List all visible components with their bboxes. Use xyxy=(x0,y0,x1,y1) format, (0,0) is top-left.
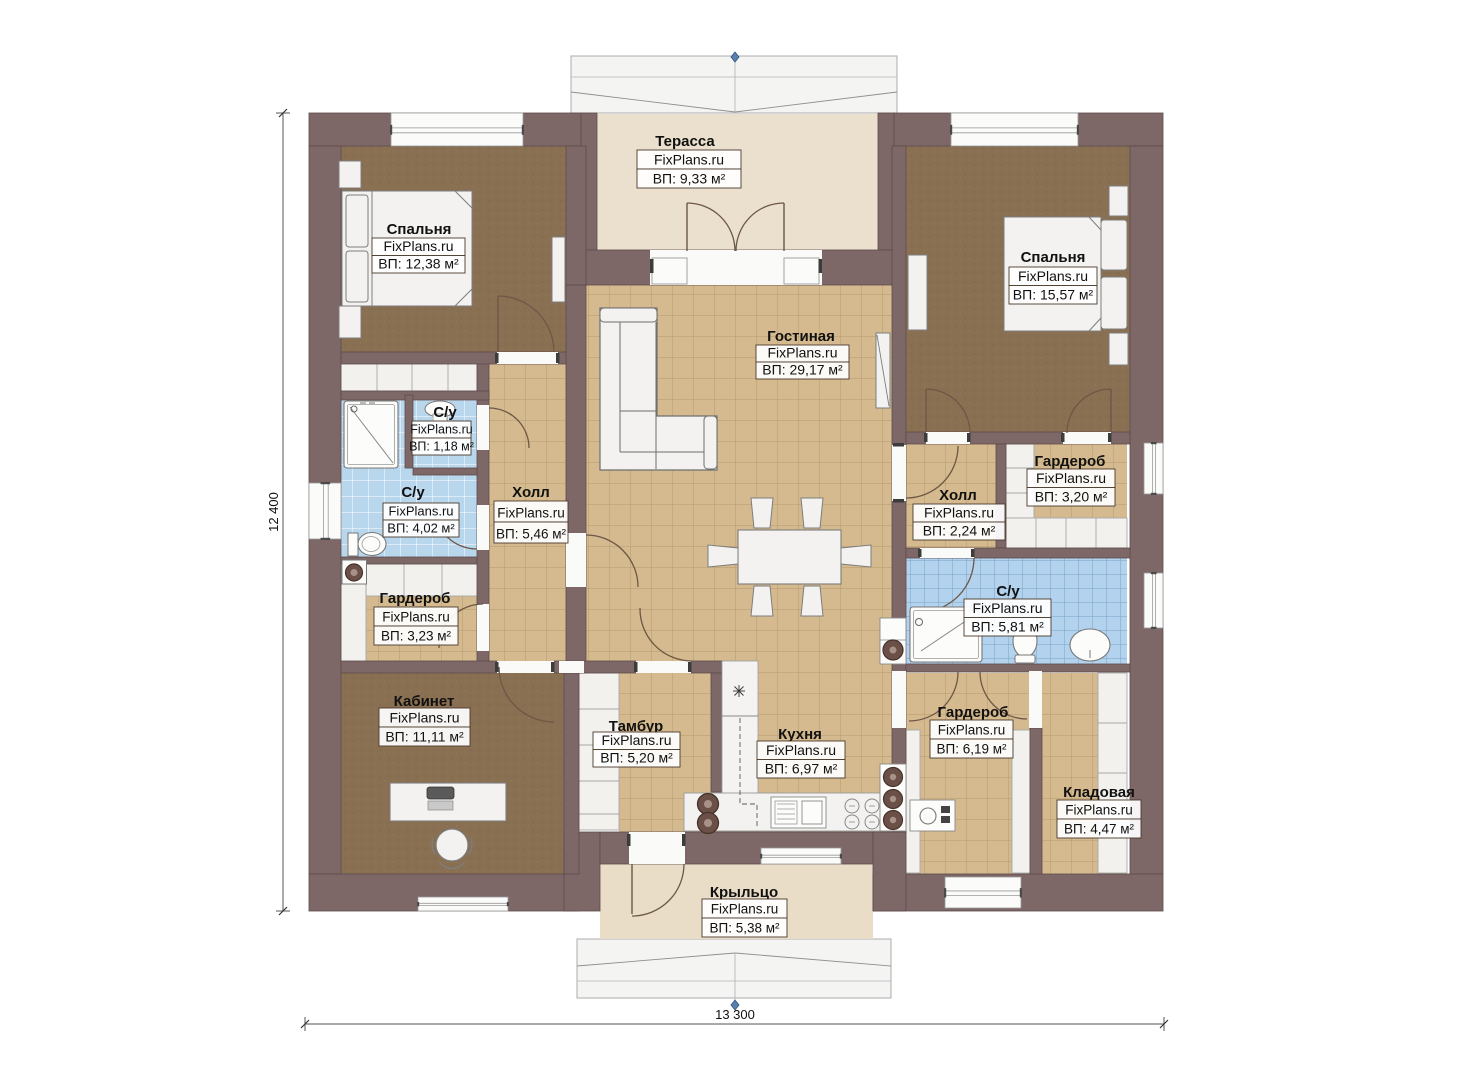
svg-text:ВП: 6,97 м²: ВП: 6,97 м² xyxy=(765,761,838,777)
svg-text:ВП: 4,02 м²: ВП: 4,02 м² xyxy=(387,521,455,536)
svg-text:12 400: 12 400 xyxy=(266,492,281,532)
svg-text:Кухня: Кухня xyxy=(778,726,822,743)
svg-text:Кладовая: Кладовая xyxy=(1063,784,1135,801)
svg-text:ВП: 9,33 м²: ВП: 9,33 м² xyxy=(653,171,726,187)
svg-text:Терасса: Терасса xyxy=(655,133,715,150)
svg-text:ВП: 15,57 м²: ВП: 15,57 м² xyxy=(1013,287,1094,303)
svg-text:ВП: 3,23 м²: ВП: 3,23 м² xyxy=(381,629,452,644)
svg-text:ВП: 5,20 м²: ВП: 5,20 м² xyxy=(600,750,673,766)
svg-text:Гостиная: Гостиная xyxy=(767,328,835,345)
svg-text:ВП: 11,11 м²: ВП: 11,11 м² xyxy=(385,729,464,745)
svg-text:FixPlans.ru: FixPlans.ru xyxy=(601,732,671,748)
svg-text:FixPlans.ru: FixPlans.ru xyxy=(924,505,994,521)
svg-text:Спальня: Спальня xyxy=(1021,249,1086,266)
svg-text:ВП: 5,46 м²: ВП: 5,46 м² xyxy=(496,527,567,542)
svg-text:Холл: Холл xyxy=(512,484,550,501)
svg-text:ВП: 5,81 м²: ВП: 5,81 м² xyxy=(971,619,1044,635)
svg-text:ВП: 6,19 м²: ВП: 6,19 м² xyxy=(936,742,1007,757)
svg-text:FixPlans.ru: FixPlans.ru xyxy=(767,345,837,361)
svg-text:Холл: Холл xyxy=(939,487,977,504)
svg-text:FixPlans.ru: FixPlans.ru xyxy=(972,600,1042,616)
svg-text:ВП: 4,47 м²: ВП: 4,47 м² xyxy=(1064,822,1135,837)
svg-text:FixPlans.ru: FixPlans.ru xyxy=(938,723,1006,738)
svg-text:FixPlans.ru: FixPlans.ru xyxy=(711,902,779,917)
svg-text:FixPlans.ru: FixPlans.ru xyxy=(497,506,565,521)
svg-text:FixPlans.ru: FixPlans.ru xyxy=(766,742,836,758)
svg-text:ВП: 1,18 м²: ВП: 1,18 м² xyxy=(409,440,474,454)
svg-text:FixPlans.ru: FixPlans.ru xyxy=(388,504,453,519)
svg-text:FixPlans.ru: FixPlans.ru xyxy=(1018,268,1088,284)
svg-text:С/у: С/у xyxy=(401,484,425,501)
svg-text:С/у: С/у xyxy=(433,404,457,421)
svg-text:FixPlans.ru: FixPlans.ru xyxy=(410,423,473,437)
svg-text:С/у: С/у xyxy=(996,583,1020,600)
svg-text:Кабинет: Кабинет xyxy=(394,693,455,710)
svg-text:ВП: 5,38 м²: ВП: 5,38 м² xyxy=(709,921,780,936)
svg-text:FixPlans.ru: FixPlans.ru xyxy=(382,610,450,625)
svg-text:FixPlans.ru: FixPlans.ru xyxy=(1036,470,1106,486)
svg-text:Спальня: Спальня xyxy=(387,221,452,238)
svg-text:FixPlans.ru: FixPlans.ru xyxy=(383,238,453,254)
svg-text:13 300: 13 300 xyxy=(715,1007,755,1022)
svg-text:ВП: 3,20 м²: ВП: 3,20 м² xyxy=(1035,489,1108,505)
svg-text:ВП: 12,38 м²: ВП: 12,38 м² xyxy=(378,256,459,272)
svg-text:ВП: 2,24 м²: ВП: 2,24 м² xyxy=(923,523,996,539)
svg-text:FixPlans.ru: FixPlans.ru xyxy=(389,710,459,726)
svg-text:Гардероб: Гардероб xyxy=(938,704,1009,721)
svg-text:Гардероб: Гардероб xyxy=(1035,453,1106,470)
svg-text:Крыльцо: Крыльцо xyxy=(710,884,778,901)
svg-text:FixPlans.ru: FixPlans.ru xyxy=(654,152,724,168)
svg-text:Гардероб: Гардероб xyxy=(380,590,451,607)
svg-text:FixPlans.ru: FixPlans.ru xyxy=(1065,803,1133,818)
svg-text:ВП: 29,17 м²: ВП: 29,17 м² xyxy=(762,362,843,378)
